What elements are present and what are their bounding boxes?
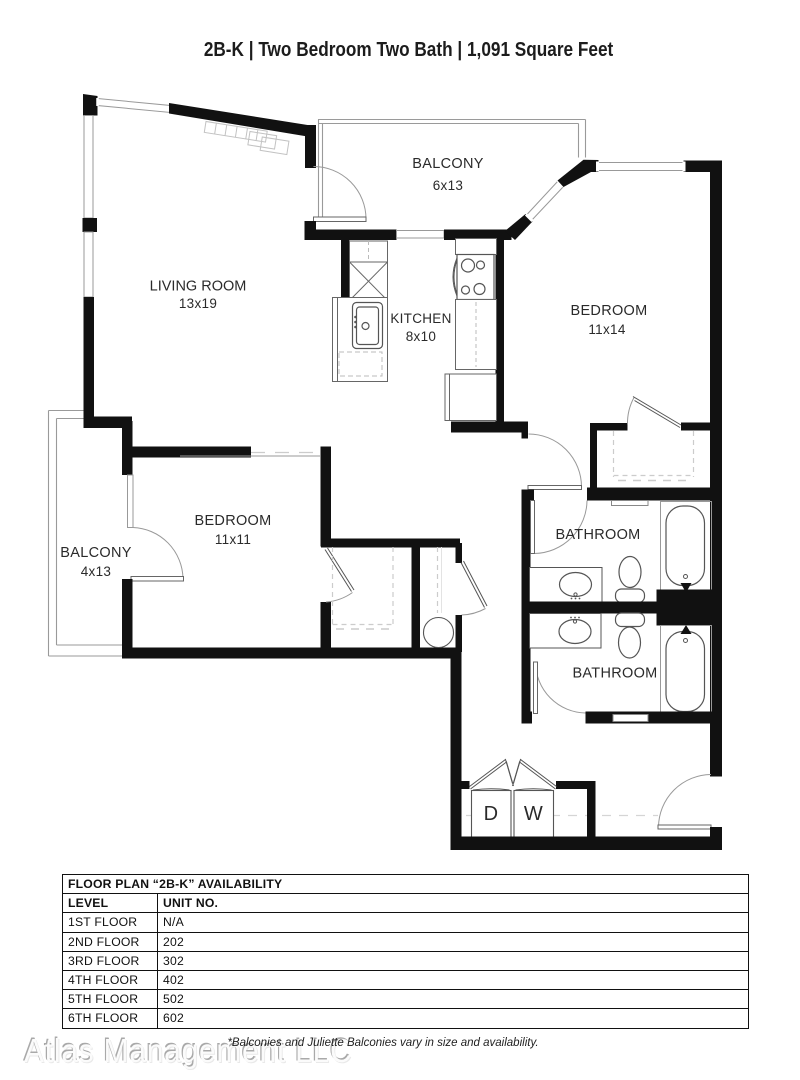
svg-text:BATHROOM: BATHROOM [555,527,640,543]
svg-text:BEDROOM: BEDROOM [570,303,647,319]
svg-text:11x14: 11x14 [588,322,625,337]
svg-text:BEDROOM: BEDROOM [194,513,271,529]
svg-text:13x19: 13x19 [179,296,217,311]
svg-text:W: W [524,803,543,825]
svg-text:11x11: 11x11 [215,532,251,547]
svg-text:4x13: 4x13 [81,564,111,579]
svg-text:BALCONY: BALCONY [60,545,131,561]
svg-text:KITCHEN: KITCHEN [390,311,451,326]
svg-text:BALCONY: BALCONY [412,156,483,172]
svg-text:D: D [484,803,499,825]
svg-text:6x13: 6x13 [433,178,463,193]
svg-text:8x10: 8x10 [406,329,436,344]
svg-text:BATHROOM: BATHROOM [572,666,657,682]
svg-text:LIVING ROOM: LIVING ROOM [150,279,247,295]
